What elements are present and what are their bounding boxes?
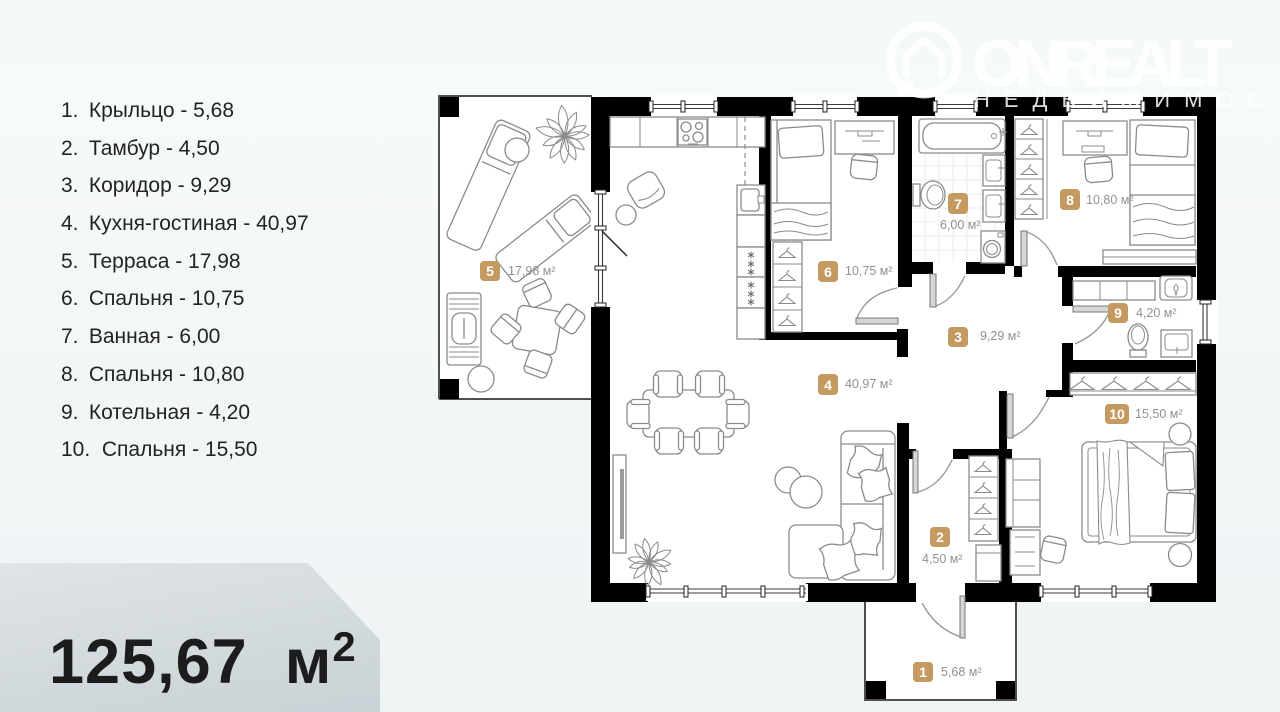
svg-text:НЕДВИЖИМОСТЬ: НЕДВИЖИМОСТЬ (974, 87, 1280, 112)
